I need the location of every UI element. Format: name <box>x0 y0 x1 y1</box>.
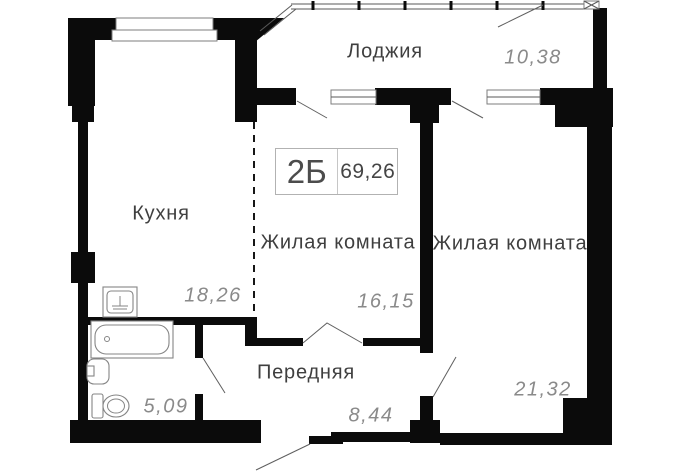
area-living1: 16,15 <box>357 291 415 314</box>
unit-type: 2Б <box>276 149 338 194</box>
area-hall: 8,44 <box>349 405 394 428</box>
living1-door-leader <box>303 323 362 343</box>
living1-balcony-window <box>331 90 376 104</box>
area-loggia: 10,38 <box>504 47 562 70</box>
area-living2: 21,32 <box>514 379 572 402</box>
area-kitchen: 18,26 <box>184 285 242 308</box>
room-label-living1: Жилая комната <box>261 232 416 255</box>
area-bathroom: 5,09 <box>144 396 189 419</box>
kitchen-sink <box>103 287 137 317</box>
kitchen-window <box>112 18 217 41</box>
toilet <box>92 394 129 418</box>
room-label-living2: Жилая комната <box>433 233 588 256</box>
room-label-loggia: Лоджия <box>347 41 423 64</box>
loggia-end-window-icon <box>584 1 599 9</box>
bathroom-door-leader <box>203 358 225 393</box>
bathtub <box>91 321 173 358</box>
washbasin <box>87 359 109 384</box>
living1-balcony-door-leader <box>297 101 327 118</box>
room-label-hall: Передняя <box>257 362 355 385</box>
entry-door-leader <box>256 444 310 470</box>
unit-total-area: 69,26 <box>338 149 397 194</box>
living2-balcony-window <box>487 90 540 104</box>
room-label-kitchen: Кухня <box>132 203 190 226</box>
floor-plan: 2Б 69,26 Лоджия Кухня Жилая комната Жила… <box>0 0 680 471</box>
unit-card: 2Б 69,26 <box>275 148 398 195</box>
loggia-leader <box>498 5 543 27</box>
loggia-glazing <box>260 1 599 35</box>
living2-balcony-door-leader <box>452 101 483 118</box>
living2-door-leader <box>433 357 456 397</box>
